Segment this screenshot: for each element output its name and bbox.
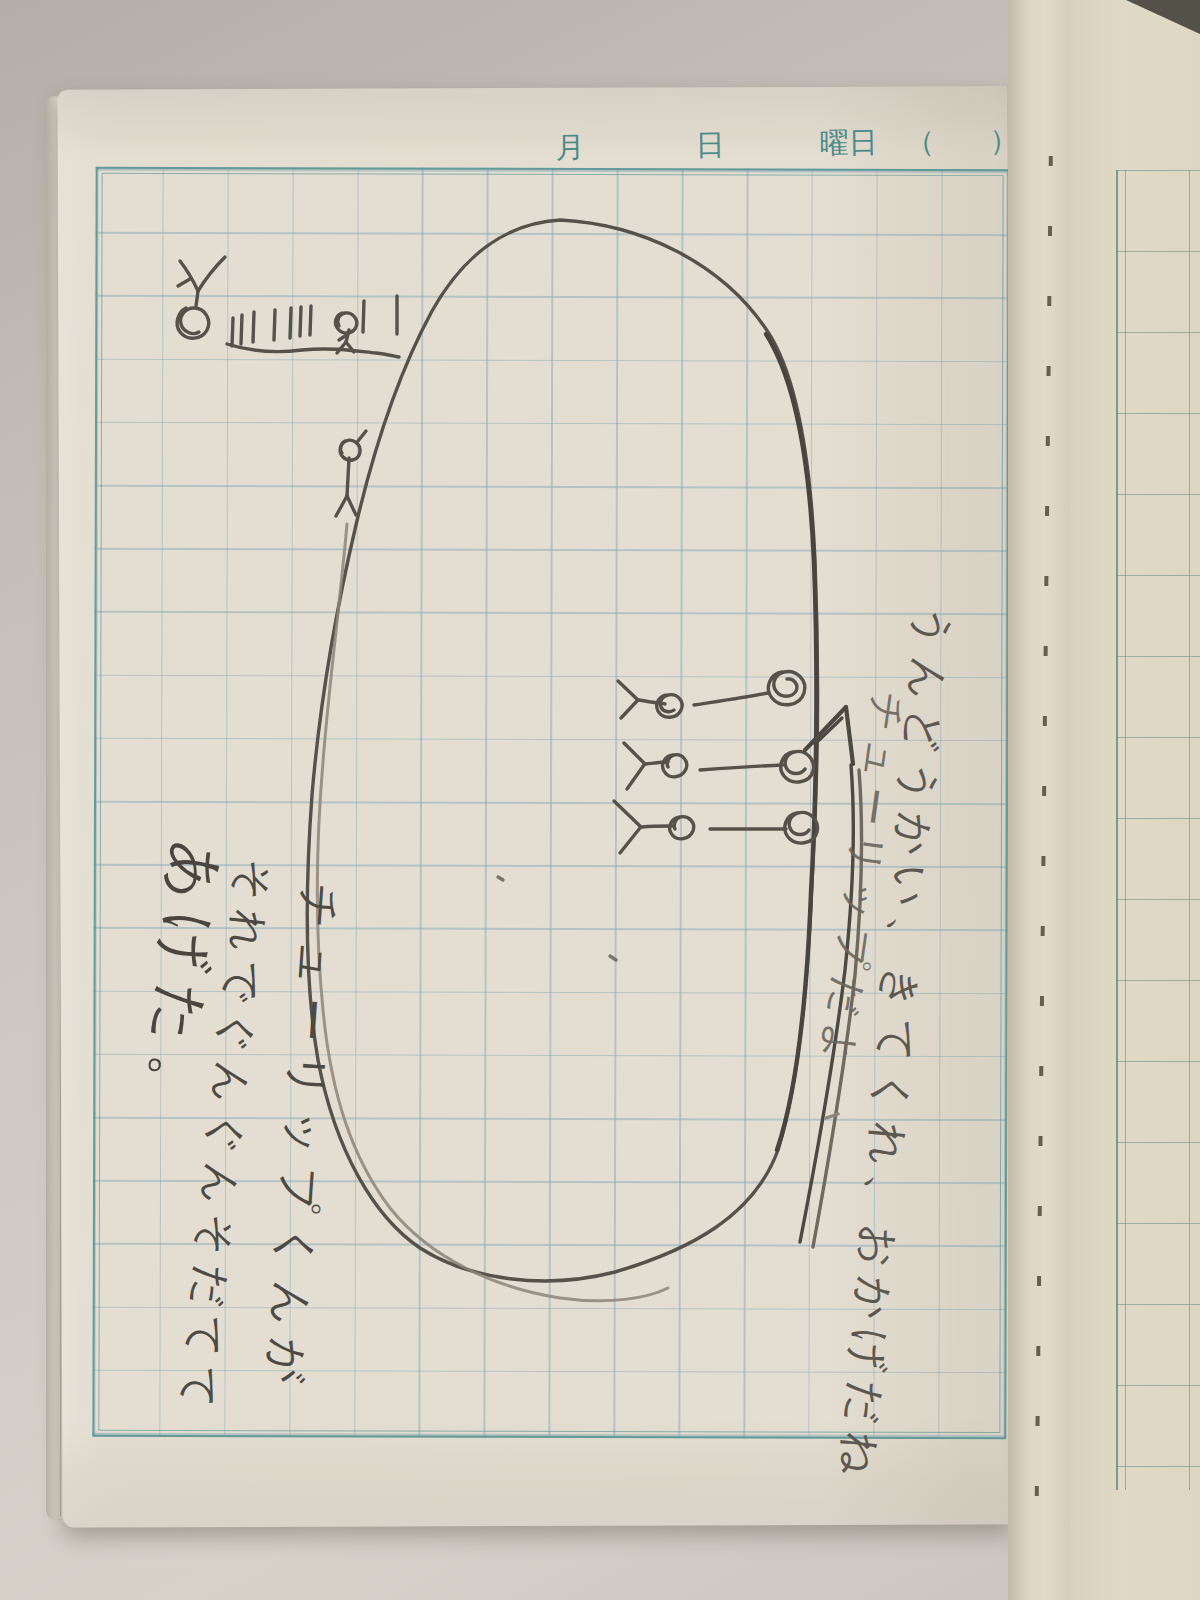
tulip-1 bbox=[618, 672, 805, 718]
tulip-3 bbox=[614, 801, 818, 853]
fence-tally-marks-with-child bbox=[227, 296, 399, 357]
tulip-2 bbox=[624, 743, 814, 789]
field-oval-second-stroke bbox=[317, 524, 668, 1301]
stick-figure-arms-raised bbox=[177, 257, 225, 338]
photo-of-notebook: { "header": { "month": "月", "day": "日", … bbox=[0, 0, 1200, 1600]
field-oval bbox=[307, 220, 817, 1281]
stray-dot-1 bbox=[498, 877, 503, 880]
field-oval-dark-rim bbox=[766, 334, 816, 1150]
stray-dot-2 bbox=[610, 956, 616, 960]
